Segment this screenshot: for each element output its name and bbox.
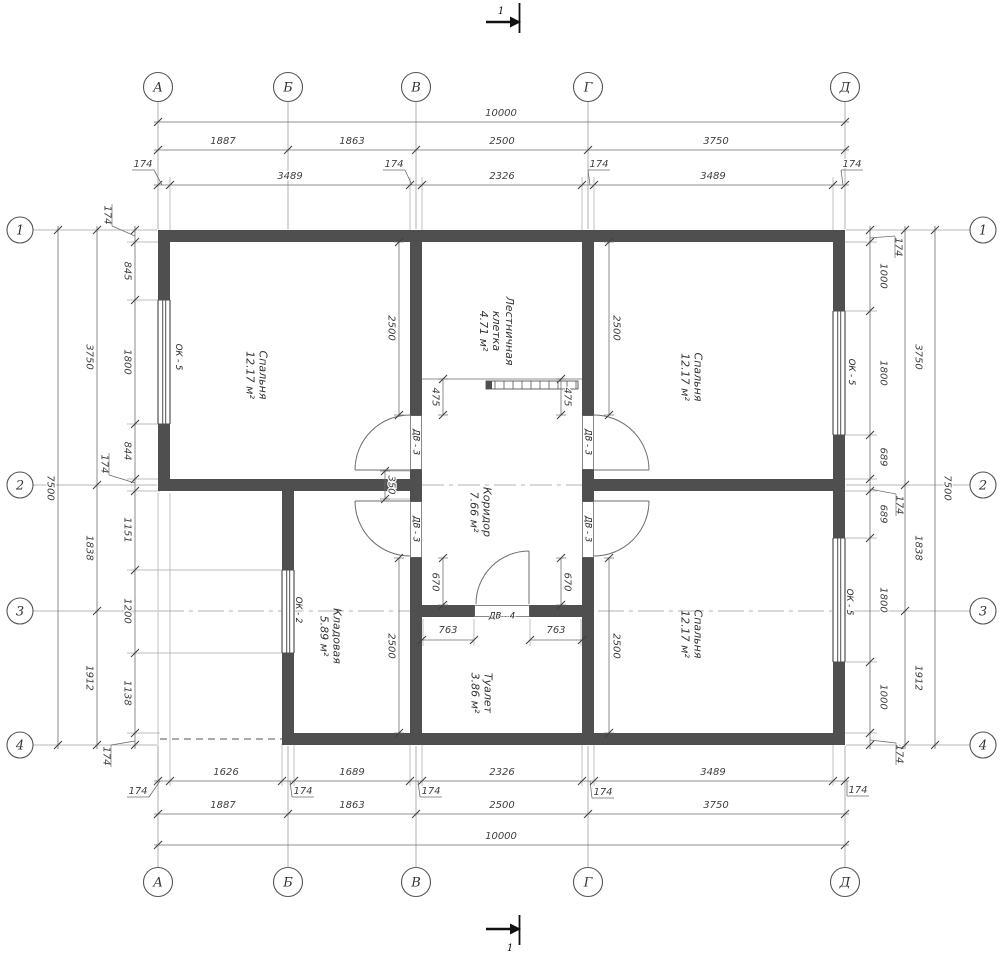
axis-bubble-label-Г: Г [583, 876, 593, 891]
axis-bubble-label-1: 1 [979, 224, 987, 239]
dimension-label: 3750 [703, 800, 728, 811]
room-label-toilet: Туалет3.86 м² [469, 673, 495, 714]
section-number: 1 [498, 6, 504, 17]
door-swing-dv3-g-top [594, 415, 649, 470]
room-label-line: 7.66 м² [468, 492, 481, 533]
dimension-label: 1863 [339, 136, 364, 147]
dimension-label: 475 [562, 387, 573, 406]
dimension-label: 845 [122, 261, 133, 280]
dimension-label: 7500 [45, 475, 56, 500]
dimension-label: 2500 [611, 633, 622, 658]
window-tag-ok2: ОК - 2 [293, 597, 303, 624]
dimension-label: 1800 [878, 360, 889, 385]
door-swing-dv3-g-bottom [594, 501, 649, 556]
dimension-label: 3750 [84, 344, 95, 369]
dimension-label: 174 [848, 785, 867, 796]
window-ok5-right-top [832, 311, 846, 435]
dimension-label: 174 [293, 786, 312, 797]
dimension-label: 1138 [122, 680, 133, 705]
dimension-label: 174 [133, 159, 152, 170]
window-ok2 [281, 570, 295, 653]
room-label-line: 3.86 м² [469, 673, 482, 714]
room-label-line: 12.17 м² [244, 351, 257, 399]
room-label-line: Кладовая [331, 608, 344, 664]
dimension-label: 10000 [485, 831, 517, 842]
floor-plan-canvas: 1 1 ААББВВГГДД11223344 10000188718632500… [0, 0, 1000, 955]
dimension-label: 670 [430, 572, 441, 591]
dimension-label: 1200 [122, 598, 133, 623]
axis-bubble-label-Б: Б [282, 81, 293, 96]
dimension-label: 1838 [913, 535, 924, 560]
axis-bubble-label-Д: Д [839, 876, 851, 891]
dimension-label: 1887 [210, 800, 236, 811]
dimension-label: 3489 [700, 767, 725, 778]
dimension-label: 174 [384, 159, 403, 170]
axis-bubble-label-2: 2 [15, 479, 24, 494]
dimension-label: 1912 [84, 665, 95, 690]
dimension-label: 1800 [122, 349, 133, 374]
dimension-label: 1912 [913, 665, 924, 690]
axis-bubble-label-3: 3 [16, 605, 24, 620]
dimension-label: 174 [102, 205, 113, 224]
room-label-line: 12.17 м² [679, 353, 692, 401]
axis-bubble-label-В: В [410, 81, 421, 96]
leader-slash [841, 170, 843, 185]
leader-slash [111, 741, 135, 745]
section-number: 1 [507, 943, 513, 954]
dimension-label: 2500 [386, 315, 397, 340]
dimension-label: 1887 [210, 136, 236, 147]
dimension-label: 689 [878, 447, 889, 466]
leader-slash [112, 226, 135, 236]
dimension-label: 174 [894, 495, 905, 514]
axis-bubble-label-Г: Г [583, 81, 593, 96]
dimension-label: 174 [421, 786, 440, 797]
dimension-label: 174 [99, 454, 110, 473]
dimension-label: 1000 [878, 684, 889, 709]
window-tag-ok5-right-bottom: ОК - 5 [844, 589, 854, 616]
walls [158, 230, 845, 745]
dimension-label: 2500 [489, 136, 514, 147]
axis-bubble-label-1: 1 [16, 224, 24, 239]
room-label-line: 5.89 м² [318, 616, 331, 657]
room-label-bedroom-bottom-right: Спальня12.17 м² [679, 610, 705, 659]
dimension-label: 1689 [339, 767, 364, 778]
dimension-label: 2326 [489, 767, 514, 778]
axis-bubble-label-А: А [152, 876, 163, 891]
dimension-label: 174 [128, 786, 147, 797]
dimension-label: 689 [878, 504, 889, 523]
leader-slash [870, 236, 895, 238]
door-tag-dv3-v-top: ДВ - 3 [411, 428, 421, 455]
dimension-label: 174 [101, 746, 112, 765]
wall-axis-g [582, 242, 594, 733]
door-tag-dv3-v-bottom: ДВ - 3 [411, 515, 421, 542]
dimension-label: 1000 [878, 263, 889, 288]
dimension-label: 350 [386, 475, 397, 494]
dimension-label: 3489 [700, 171, 725, 182]
dimension-label: 670 [562, 572, 573, 591]
dimension-label: 844 [122, 441, 133, 460]
dimension-label: 174 [589, 159, 608, 170]
room-label-stairwell: Лестничнаяклетка4.71 м² [477, 296, 516, 366]
room-label-line: Лестничная [503, 296, 516, 366]
dimension-label: 2500 [611, 315, 622, 340]
room-label-line: 12.17 м² [679, 610, 692, 658]
section-mark-top: 1 [486, 3, 521, 33]
dimension-label: 763 [546, 625, 565, 636]
door-tag-dv3-g-top: ДВ - 3 [583, 428, 593, 455]
room-label-line: клетка [490, 311, 503, 351]
room-label-bedroom-top-right: Спальня12.17 м² [679, 353, 705, 402]
dimension-label: 174 [593, 787, 612, 798]
room-label-line: Спальня [692, 353, 705, 402]
window-tag-ok5-right-top: ОК - 5 [846, 359, 856, 386]
door-swing-dv4 [476, 551, 529, 604]
dimension-label: 2500 [386, 633, 397, 658]
dimension-label: 1151 [122, 517, 133, 542]
door-swing-dv3-v-top [355, 415, 410, 470]
room-label-line: Туалет [482, 673, 495, 714]
dimension-label: 2500 [489, 800, 514, 811]
room-label-bedroom-top-left: Спальня12.17 м² [244, 351, 270, 400]
dimension-label: 1626 [213, 767, 238, 778]
room-label-line: 4.71 м² [477, 311, 490, 352]
room-labels-layer: Спальня12.17 м²Спальня12.17 м²Спальня12.… [244, 296, 705, 714]
dimension-label: 1800 [878, 587, 889, 612]
dimension-label: 1863 [339, 800, 364, 811]
room-label-storage: Кладовая5.89 м² [318, 608, 344, 664]
floor-plan-page: 1 1 ААББВВГГДД11223344 10000188718632500… [0, 0, 1000, 955]
room-label-line: Спальня [257, 351, 270, 400]
section-mark-bottom: 1 [486, 915, 521, 954]
leader-slash [870, 489, 896, 494]
axis-bubble-label-Б: Б [282, 876, 293, 891]
dimension-label: 763 [438, 625, 457, 636]
door-tag-dv4: ДВ - 4 [488, 612, 515, 622]
axis-bubble-label-В: В [410, 876, 421, 891]
dimension-label: 174 [842, 159, 861, 170]
room-label-corridor: Коридор7.66 м² [468, 487, 494, 537]
dimension-label: 3750 [703, 136, 728, 147]
dimension-label: 10000 [485, 108, 517, 119]
axis-dash-lines [158, 485, 845, 611]
door-tag-dv3-g-bottom: ДВ - 3 [583, 515, 593, 542]
wall-top [158, 230, 845, 242]
dimension-label: 7500 [942, 475, 953, 500]
axis-bubble-label-4: 4 [978, 739, 987, 754]
window-ok5-right-bottom [832, 538, 846, 662]
dimension-label: 475 [430, 387, 441, 406]
axis-bubble-label-А: А [152, 81, 163, 96]
wall-axis-v [410, 242, 422, 733]
dimension-label: 1838 [84, 535, 95, 560]
dimension-label: 2326 [489, 171, 514, 182]
leader-slash [405, 170, 412, 185]
axis-bubble-label-4: 4 [15, 739, 24, 754]
axis-bubble-label-3: 3 [979, 605, 987, 620]
wall-axis2-right [582, 479, 845, 491]
dimension-label: 3489 [277, 171, 302, 182]
door-swing-dv3-v-bottom [355, 501, 410, 556]
dimension-label: 3750 [913, 344, 924, 369]
window-tag-ok5-left: ОК - 5 [173, 344, 183, 371]
axis-bubble-label-Д: Д [839, 81, 851, 96]
dimension-label: 174 [893, 237, 904, 256]
axis-bubble-label-2: 2 [978, 479, 987, 494]
stair-symbol [422, 379, 582, 389]
wall-bottom [282, 733, 845, 745]
room-label-line: Спальня [692, 610, 705, 659]
room-label-line: Коридор [481, 487, 494, 537]
window-ok5-left [157, 300, 171, 424]
